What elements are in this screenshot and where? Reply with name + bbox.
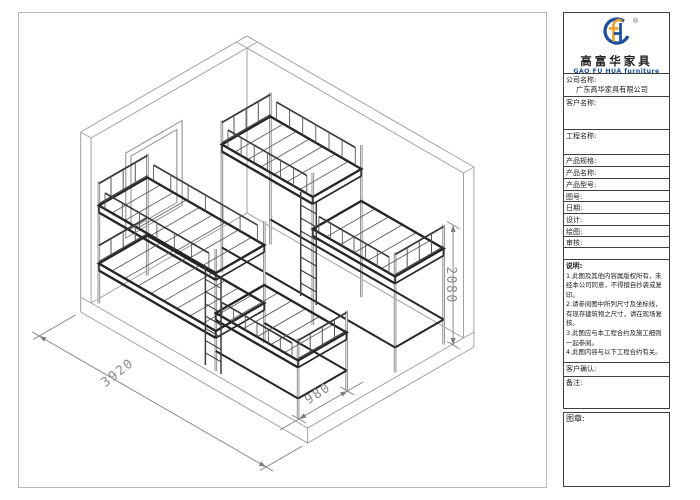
note-line: 有现存建筑物之尺寸，请在现场复 [566,310,667,320]
company-label: 公司名称: [566,75,669,85]
drawing-sheet: 3920 980 2080 ® 高富华家具 GAO FU HUA furnitu… [0,0,700,500]
note-line: 一起参阅。 [566,339,667,349]
field-blank [564,248,669,260]
brand-name-cn: 高富华家具 [564,55,669,68]
field-company: 公司名称: 广东高华家具有限公司 [564,74,669,97]
spec-label: 产品规格: [566,157,596,165]
audit-label: 审核: [566,239,582,247]
field-date: 日期: [564,202,669,214]
drawing-no-label: 图号: [566,193,582,201]
note-line: 经本公司同意，不得擅自抄袭或复 [566,281,667,291]
design-label: 设计: [566,216,582,224]
dimension-label-width: 980 [302,380,334,408]
note-line: 4.此图内容与以下工程合约有关。 [566,348,667,358]
product-label: 产品名称: [566,169,596,177]
customer-label: 客户名称: [566,99,596,107]
draft-label: 绘图: [566,228,582,236]
field-drawing-no: 图号: [564,191,669,202]
company-value: 广东高华家具有限公司 [566,85,669,95]
field-product-name: 产品名称: [564,167,669,179]
stamp-label: 图章: [566,414,585,423]
registered-mark: ® [632,17,639,25]
stamp-block: 图章: [563,412,670,487]
remark-label: 备注: [566,379,582,387]
note-line: 核。 [566,319,667,329]
field-product-spec: 产品规格: [564,155,669,167]
field-design: 设计: [564,214,669,226]
field-stamp: 图章: [564,413,669,486]
notes-title: 说明: [566,262,667,272]
field-customer: 客户名称: [564,97,669,130]
note-line: 1.此图及其他内容属版权所有，未 [566,272,667,282]
field-draft: 绘图: [564,226,669,237]
date-label: 日期: [566,204,582,212]
note-line: 2.请参阅图中所列尺寸及坐标线， [566,300,667,310]
field-customer-confirm: 客户确认: [564,363,669,377]
field-remark: 备注: [564,377,669,408]
note-line: 印。 [566,291,667,301]
model-label: 产品型号: [566,181,596,189]
field-audit: 审核: [564,237,669,248]
notes-cell: 说明: 1.此图及其他内容属版权所有，未 经本公司同意，不得擅自抄袭或复 印。 … [564,260,669,363]
project-label: 工程名称: [566,132,596,140]
note-line: 3.此图应与本工程合约及施工细则 [566,329,667,339]
dimension-label-length: 3920 [99,356,138,391]
company-logo-icon: ® [567,14,667,52]
dimension-label-height: 2080 [443,266,458,303]
confirm-label: 客户确认: [566,365,596,373]
logo-cell: ® 高富华家具 GAO FU HUA furniture [564,13,669,74]
title-block: ® 高富华家具 GAO FU HUA furniture 公司名称: 广东高华家… [563,12,670,409]
field-project: 工程名称: [564,130,669,155]
field-product-model: 产品型号: [564,179,669,191]
